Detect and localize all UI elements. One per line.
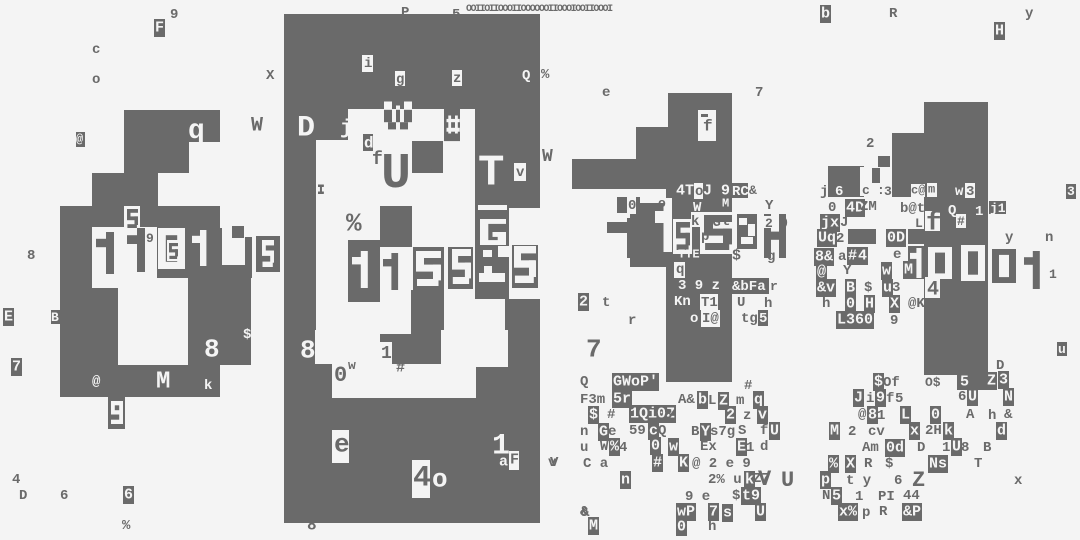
svg-text:m: m [928, 182, 935, 196]
svg-text:D: D [917, 440, 925, 456]
svg-text:h: h [822, 296, 830, 312]
svg-text:M: M [904, 262, 913, 279]
svg-text:RC: RC [732, 184, 749, 200]
svg-text:j: j [340, 118, 352, 141]
svg-text:A: A [966, 407, 975, 423]
svg-text:J: J [854, 390, 863, 407]
svg-text:F: F [155, 20, 164, 37]
svg-text:L360: L360 [837, 312, 873, 329]
svg-text:#: # [607, 407, 615, 423]
svg-text:M: M [722, 196, 729, 210]
svg-text:$: $ [885, 456, 893, 472]
svg-text:O$: O$ [925, 375, 941, 390]
svg-text:w: w [882, 263, 891, 280]
svg-text:8: 8 [664, 407, 672, 423]
svg-text:D: D [297, 111, 315, 145]
svg-text:Z: Z [987, 373, 996, 390]
svg-text:Of: Of [883, 375, 900, 391]
svg-text:o: o [658, 196, 666, 211]
svg-text:@: @ [817, 264, 826, 281]
svg-text:2% u: 2% u [708, 472, 742, 488]
svg-text:5: 5 [759, 311, 767, 327]
svg-text:8: 8 [27, 248, 35, 264]
svg-text:a: a [499, 454, 508, 471]
svg-text:y: y [1025, 6, 1034, 22]
svg-text:b: b [698, 392, 707, 409]
svg-text:e: e [602, 85, 610, 101]
svg-text:r: r [628, 313, 636, 329]
svg-text:9: 9 [146, 231, 154, 246]
svg-text:U: U [756, 504, 765, 521]
svg-text:0: 0 [779, 216, 788, 233]
svg-text:f: f [760, 423, 768, 439]
svg-text:N: N [1004, 389, 1013, 406]
svg-text:q: q [188, 116, 205, 147]
svg-text:f: f [886, 391, 894, 407]
svg-text:7: 7 [586, 334, 602, 364]
svg-text:p: p [701, 229, 709, 245]
svg-text:V: V [758, 467, 772, 492]
svg-text:B: B [691, 424, 700, 440]
svg-text:i: i [364, 56, 372, 72]
svg-text:7: 7 [755, 85, 763, 101]
svg-text:R: R [889, 6, 898, 22]
svg-text:T1: T1 [701, 295, 718, 311]
svg-text:h: h [708, 519, 716, 535]
svg-text:o: o [92, 72, 100, 88]
svg-text:f: f [372, 150, 383, 170]
svg-text:4: 4 [858, 248, 867, 265]
svg-text:U: U [968, 389, 977, 406]
svg-text:6: 6 [124, 487, 133, 504]
svg-text:5: 5 [832, 488, 841, 505]
svg-text:0: 0 [651, 438, 660, 455]
svg-text:OOIIOIIOOOIIOOOOOOIIOOOIOOIIOO: OOIIOIIOOOIIOOOOOOIIOOOIOOIIOOOI [466, 4, 613, 15]
svg-text:n: n [580, 424, 588, 440]
svg-text:v: v [758, 407, 767, 424]
svg-text:%: % [122, 518, 131, 534]
svg-text:L: L [915, 216, 923, 231]
svg-text:2: 2 [836, 231, 844, 247]
svg-text:R: R [879, 504, 888, 520]
svg-text:w: w [348, 358, 356, 373]
svg-text:0: 0 [334, 363, 347, 388]
svg-text:1: 1 [1049, 267, 1057, 282]
svg-text:x: x [910, 423, 919, 440]
svg-text:6: 6 [958, 389, 966, 405]
svg-text:%: % [829, 456, 839, 473]
svg-text:Ex: Ex [700, 439, 717, 455]
svg-text:X: X [890, 296, 899, 313]
svg-text:U: U [952, 439, 961, 456]
svg-text:0d: 0d [886, 440, 904, 457]
svg-text:2H: 2H [925, 423, 942, 439]
svg-text:4: 4 [12, 472, 20, 488]
svg-text:U: U [381, 146, 411, 203]
svg-text:@K: @K [908, 296, 925, 312]
svg-text:m: m [736, 393, 744, 409]
svg-text:L: L [901, 407, 910, 424]
svg-text:2: 2 [765, 216, 773, 231]
svg-text:0: 0 [931, 407, 940, 424]
svg-text:1: 1 [877, 408, 885, 424]
svg-text:&: & [580, 504, 589, 520]
svg-text:M: M [156, 369, 170, 396]
svg-text:n: n [1045, 230, 1053, 246]
svg-text:J: J [840, 215, 848, 231]
svg-text:GWoP': GWoP' [613, 374, 658, 391]
svg-text:59: 59 [629, 423, 646, 439]
svg-text:Ns: Ns [929, 456, 947, 473]
svg-text:t y: t y [846, 473, 872, 489]
svg-text:3: 3 [884, 184, 892, 199]
svg-text:g: g [396, 72, 404, 88]
svg-text:p: p [821, 472, 830, 489]
svg-text:i: i [866, 391, 874, 407]
svg-text:@ 2 e 9: @ 2 e 9 [692, 456, 751, 472]
svg-text:p: p [862, 505, 870, 521]
svg-text:N: N [822, 488, 830, 504]
svg-text:1: 1 [975, 204, 983, 220]
svg-text:L: L [708, 393, 716, 409]
svg-text:%: % [541, 67, 550, 83]
svg-text:$: $ [864, 280, 872, 296]
svg-text:5r: 5r [613, 391, 631, 408]
svg-text:&P: &P [903, 504, 921, 521]
svg-text:e: e [334, 429, 350, 459]
svg-text:M: M [589, 518, 598, 535]
svg-text:Q: Q [580, 374, 588, 390]
svg-text:P: P [401, 5, 409, 21]
svg-text:X: X [846, 456, 855, 473]
svg-text:0: 0 [846, 296, 855, 313]
svg-text:5: 5 [452, 7, 460, 23]
svg-text:4: 4 [619, 440, 627, 456]
svg-text:A&: A& [678, 392, 695, 408]
svg-text:H: H [865, 296, 874, 313]
svg-text:D: D [19, 488, 27, 504]
svg-text:Q: Q [948, 203, 956, 219]
svg-text:w: w [669, 439, 678, 456]
svg-text:u: u [883, 280, 892, 297]
svg-text:44: 44 [903, 488, 920, 504]
svg-text:W: W [600, 439, 609, 455]
svg-text:cv: cv [868, 424, 885, 440]
svg-text:tg: tg [741, 311, 758, 327]
svg-text:v: v [516, 165, 525, 181]
svg-text:Am: Am [862, 440, 879, 456]
svg-text:9: 9 [876, 390, 885, 407]
svg-text:1: 1 [942, 440, 950, 456]
svg-text:x%: x% [839, 504, 858, 521]
svg-text:z: z [743, 408, 751, 424]
svg-text:j1: j1 [990, 201, 1006, 216]
svg-text:2: 2 [848, 424, 856, 440]
svg-text:I@: I@ [702, 311, 719, 327]
svg-text:e: e [893, 247, 901, 263]
svg-text:7: 7 [12, 359, 21, 376]
svg-text:6: 6 [894, 473, 902, 489]
svg-text:3 9 z: 3 9 z [678, 278, 720, 294]
svg-text:W: W [251, 115, 263, 138]
svg-text:t: t [602, 295, 610, 311]
svg-text:$: $ [243, 327, 251, 343]
svg-text:Q: Q [522, 68, 530, 84]
svg-text:v: v [548, 455, 557, 471]
svg-text:6: 6 [835, 184, 843, 200]
svg-text:E: E [4, 309, 13, 326]
svg-text:8: 8 [961, 440, 969, 456]
svg-text:k: k [204, 378, 212, 394]
svg-text:&: & [1004, 407, 1013, 423]
svg-text:Kn: Kn [674, 294, 691, 310]
svg-text:9 e: 9 e [685, 489, 710, 505]
svg-text:0: 0 [677, 519, 686, 536]
svg-text:B: B [51, 310, 59, 325]
svg-text:D: D [996, 358, 1004, 374]
svg-text:PI: PI [878, 489, 895, 505]
svg-text:w: w [955, 184, 964, 200]
svg-text:#: # [653, 455, 662, 472]
svg-text:1: 1 [746, 440, 754, 456]
svg-text:X: X [266, 68, 275, 84]
svg-text:U: U [737, 295, 745, 311]
svg-text:%: % [346, 208, 362, 238]
svg-text:&v: &v [817, 280, 835, 297]
svg-text:@: @ [76, 132, 83, 146]
svg-text:x: x [1014, 473, 1023, 489]
svg-text:U: U [770, 423, 779, 440]
svg-text:M: M [830, 423, 839, 440]
svg-text:#: # [744, 378, 752, 394]
svg-text:1: 1 [381, 344, 392, 364]
svg-text:4: 4 [927, 279, 939, 302]
svg-text:2: 2 [866, 136, 874, 152]
svg-text:c@: c@ [911, 183, 925, 197]
svg-text:#: # [396, 360, 405, 377]
svg-text:8: 8 [204, 334, 220, 364]
svg-text:ZM: ZM [860, 199, 877, 215]
svg-text:u: u [580, 440, 588, 456]
svg-text:T: T [478, 148, 504, 198]
svg-text:0: 0 [628, 198, 636, 214]
svg-text:k: k [691, 214, 699, 230]
svg-text:b: b [821, 6, 830, 23]
svg-text:s7g: s7g [710, 424, 735, 440]
svg-text:#: # [957, 214, 965, 229]
svg-text:d: d [997, 423, 1006, 440]
svg-text:9: 9 [170, 7, 178, 23]
svg-text:2: 2 [726, 407, 735, 424]
svg-text:&: & [749, 183, 757, 198]
svg-text:C a: C a [583, 456, 609, 472]
svg-text:R: R [864, 456, 873, 472]
svg-text:g: g [767, 249, 775, 265]
svg-text:$: $ [589, 407, 598, 424]
svg-text:s: s [723, 505, 732, 522]
svg-text:4T: 4T [676, 183, 694, 200]
svg-text:2: 2 [579, 294, 588, 311]
svg-text:@: @ [858, 407, 867, 423]
svg-text:S: S [738, 423, 746, 439]
svg-text:d: d [760, 439, 768, 455]
svg-text:B: B [846, 280, 855, 297]
svg-text:$: $ [732, 248, 741, 265]
svg-text:h: h [764, 296, 772, 312]
svg-text:n: n [621, 472, 630, 489]
svg-text:o: o [432, 464, 448, 494]
svg-text:8: 8 [307, 517, 317, 535]
svg-text:r: r [770, 279, 778, 294]
svg-text:Y: Y [765, 198, 774, 214]
svg-text:U: U [781, 468, 794, 493]
svg-text:z: z [453, 71, 461, 87]
svg-text:E: E [737, 439, 746, 456]
svg-text:6: 6 [60, 488, 68, 504]
svg-text:o: o [690, 311, 698, 327]
svg-text:5: 5 [895, 391, 903, 407]
svg-text:@: @ [92, 374, 101, 390]
svg-text:&bFa: &bFa [732, 279, 766, 295]
svg-text:K: K [679, 455, 688, 472]
svg-text:3: 3 [966, 184, 974, 200]
svg-text:8: 8 [300, 335, 316, 365]
svg-text:b@t: b@t [900, 201, 925, 217]
svg-text:Y: Y [843, 263, 852, 279]
svg-text:3: 3 [999, 372, 1008, 389]
svg-text:f: f [926, 207, 942, 237]
svg-text:TTE: TTE [678, 247, 700, 261]
svg-text:0: 0 [828, 200, 836, 216]
svg-text:c: c [92, 42, 100, 58]
svg-text:k: k [944, 423, 953, 440]
svg-text:$: $ [732, 488, 740, 504]
svg-text:F3m: F3m [580, 392, 605, 408]
svg-text:1: 1 [855, 489, 863, 505]
svg-text:Uq: Uq [818, 230, 836, 247]
svg-text:e: e [608, 424, 616, 440]
svg-text:B: B [983, 440, 992, 456]
svg-text:j: j [820, 184, 828, 200]
svg-text:y: y [1005, 230, 1014, 246]
svg-text:W: W [542, 147, 553, 167]
svg-text:$: $ [874, 374, 883, 391]
svg-text:Q: Q [658, 423, 666, 439]
svg-text:I: I [317, 183, 325, 198]
svg-text:t: t [722, 214, 730, 230]
svg-text:H: H [995, 23, 1004, 40]
svg-text:u: u [1058, 342, 1066, 357]
svg-text:9: 9 [890, 313, 898, 329]
svg-text:3: 3 [892, 280, 900, 296]
svg-text:T: T [974, 456, 982, 472]
svg-text:F: F [510, 452, 519, 469]
svg-text:h: h [988, 408, 996, 424]
svg-text:8: 8 [868, 407, 877, 424]
svg-text:3: 3 [1067, 184, 1075, 199]
svg-text:v: v [428, 162, 437, 178]
svg-text:q: q [676, 262, 684, 278]
svg-text:c: c [862, 183, 870, 198]
svg-text:4: 4 [413, 461, 431, 495]
svg-text:f: f [703, 118, 713, 136]
svg-text:0D: 0D [887, 230, 905, 247]
